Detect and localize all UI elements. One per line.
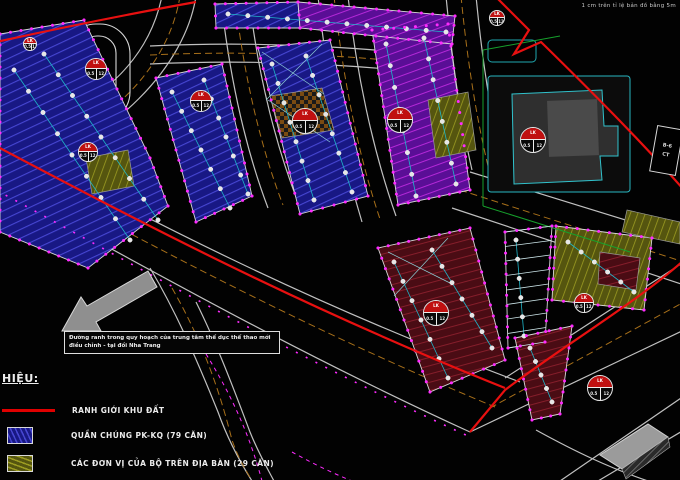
- lot-badge: LK 0.5 12: [85, 58, 107, 80]
- legend-heading: HIỆU:: [2, 372, 310, 385]
- lot-division-rungs: [505, 226, 552, 348]
- lot-badge-code: LK: [86, 59, 106, 69]
- lot-badge-code: LK: [293, 109, 317, 121]
- legend-swatch-boundary-line: [2, 409, 55, 412]
- lot-badge: LK 0.5 12: [423, 300, 449, 326]
- lot-badge: LK 0.5 12: [78, 142, 98, 162]
- lot-badge-value-left: 0.5: [24, 44, 31, 50]
- lot-badge: LK 0.5 12: [23, 37, 37, 51]
- lot-badge-code: LK: [490, 11, 504, 18]
- legend: HIỆU: RANH GIỚI KHU ĐẤT QUẦN CHÚNG PK-KQ…: [0, 372, 310, 385]
- legend-label-pkkq: QUẦN CHÚNG PK-KQ (79 CĂN): [71, 431, 207, 440]
- lot-badge-code: LK: [424, 301, 448, 313]
- lot-badge-code: LK: [191, 91, 211, 101]
- legend-item-pkkq: QUẦN CHÚNG PK-KQ (79 CĂN): [0, 426, 207, 444]
- lot-badge-code: LK: [521, 128, 545, 140]
- legend-item-units: CÁC ĐƠN VỊ CỦA BỘ TRÊN ĐỊA BÀN (29 CĂN): [0, 454, 274, 472]
- scale-note: 1 cm trên tỉ lệ bản đồ bằng 5m: [581, 3, 676, 9]
- legend-label-boundary: RANH GIỚI KHU ĐẤT: [72, 406, 164, 415]
- direction-arrow: [62, 271, 157, 331]
- legend-item-boundary: RANH GIỚI KHU ĐẤT: [0, 401, 164, 419]
- legend-swatch-olive-hatch: [7, 455, 33, 472]
- parcel-label-line-2: CT: [662, 151, 670, 158]
- cad-site-plan-canvas: 1 cm trên tỉ lệ bản đồ bằng 5m Đường ran…: [0, 0, 680, 480]
- parcel-label-line-1: B-6: [662, 142, 672, 150]
- lot-badge-code: LK: [588, 376, 612, 388]
- corner-structure: [600, 424, 670, 479]
- sports-facility: [483, 36, 630, 252]
- lot-badge-code: LK: [79, 143, 97, 152]
- lot-badge: LK 0.5 12: [190, 90, 212, 112]
- annotation-line-2: điều chỉnh - tại đồi Nha Trang: [69, 343, 275, 351]
- annotation-line-1: Đường ranh trong quy hoạch của trung tâm…: [69, 335, 275, 343]
- lot-badge: LK 0.5 12: [387, 107, 413, 133]
- lot-badge: LK 0.5 12: [520, 127, 546, 153]
- lot-badge-code: LK: [575, 294, 593, 303]
- lot-badge: LK 0.5 12: [489, 10, 505, 26]
- lot-badge-value-left: 0.5: [490, 18, 497, 25]
- lot-badge: LK 0.5 12: [574, 293, 594, 313]
- lot-badge-code: LK: [388, 108, 412, 120]
- lot-badge: LK 0.5 12: [292, 108, 318, 134]
- annotation-box: Đường ranh trong quy hoạch của trung tâm…: [64, 331, 280, 354]
- legend-label-units: CÁC ĐƠN VỊ CỦA BỘ TRÊN ĐỊA BÀN (29 CĂN): [71, 459, 274, 468]
- lot-badge: LK 0.5 12: [587, 375, 613, 401]
- legend-swatch-blue-hatch: [7, 427, 33, 444]
